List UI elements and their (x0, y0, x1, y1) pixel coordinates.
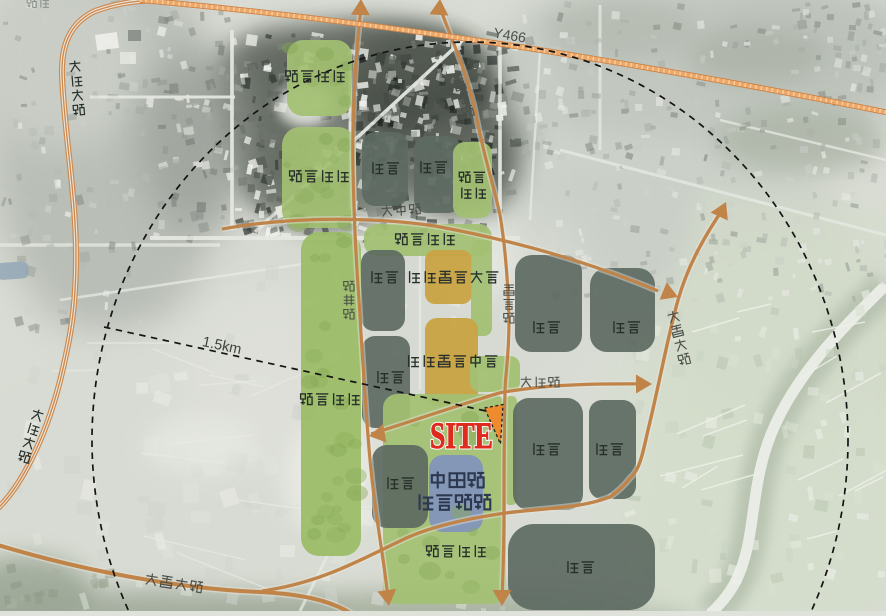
svg-text:SITE: SITE (430, 416, 493, 457)
